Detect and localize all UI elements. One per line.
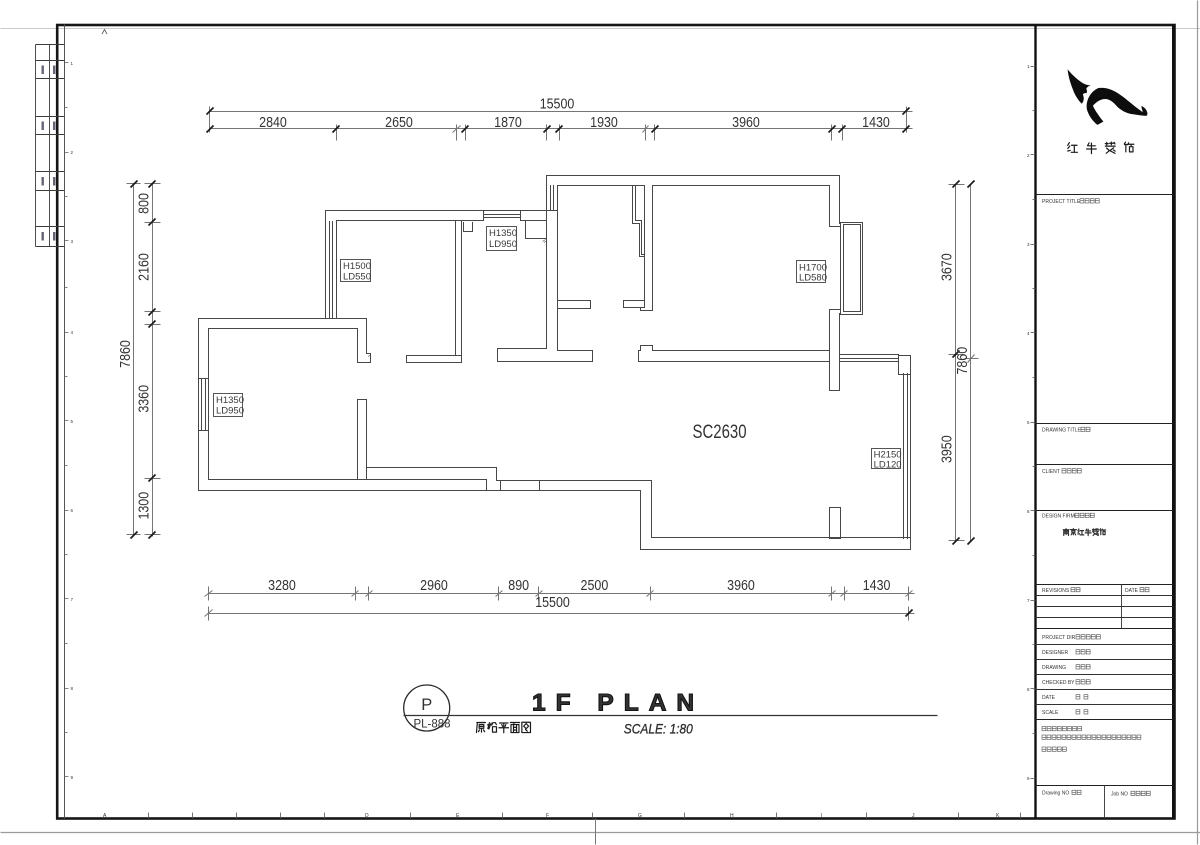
svg-text:I: I — [821, 813, 822, 819]
svg-text:3280: 3280 — [268, 577, 296, 594]
svg-text:REVISIONS: REVISIONS — [1042, 588, 1070, 594]
svg-text:DATE: DATE — [1042, 695, 1056, 701]
svg-text:7860: 7860 — [117, 340, 134, 368]
svg-text:DRAWING TITLE: DRAWING TITLE — [1042, 428, 1082, 434]
svg-text:2650: 2650 — [385, 114, 413, 131]
svg-text:SC2630: SC2630 — [693, 421, 747, 443]
svg-text:15500: 15500 — [535, 594, 570, 611]
svg-text:2960: 2960 — [420, 577, 448, 594]
svg-text:P: P — [421, 696, 432, 714]
svg-text:LD950: LD950 — [489, 239, 517, 250]
svg-text:15500: 15500 — [540, 96, 575, 113]
svg-text:LD580: LD580 — [799, 273, 827, 284]
svg-text:DRAWING: DRAWING — [1042, 665, 1066, 671]
svg-text:SCALE: SCALE — [1042, 710, 1059, 716]
svg-text:1300: 1300 — [135, 492, 152, 520]
svg-text:CLIENT: CLIENT — [1042, 469, 1060, 475]
svg-text:PROJECT DIR: PROJECT DIR — [1042, 635, 1076, 641]
svg-text:7860: 7860 — [954, 347, 971, 375]
svg-text:H: H — [730, 813, 734, 819]
svg-text:SCALE: 1:80: SCALE: 1:80 — [624, 720, 693, 736]
svg-text:H1350: H1350 — [216, 395, 244, 406]
svg-text:1870: 1870 — [494, 114, 522, 131]
svg-text:F: F — [546, 813, 549, 819]
svg-text:3670: 3670 — [939, 253, 956, 281]
svg-text:2160: 2160 — [135, 253, 152, 281]
svg-text:Drawing NO: Drawing NO — [1042, 791, 1069, 797]
svg-text:LD950: LD950 — [216, 406, 244, 417]
svg-text:890: 890 — [508, 577, 529, 594]
svg-text:PL-888: PL-888 — [413, 719, 450, 731]
svg-text:800: 800 — [135, 193, 152, 214]
svg-text:G: G — [638, 813, 642, 819]
svg-text:1930: 1930 — [590, 114, 618, 131]
svg-text:1430: 1430 — [862, 114, 890, 131]
svg-text:H1500: H1500 — [343, 261, 371, 272]
svg-text:3960: 3960 — [732, 114, 760, 131]
svg-text:CHECKED BY: CHECKED BY — [1042, 680, 1075, 686]
svg-text:2500: 2500 — [581, 577, 609, 594]
svg-text:DESIGNER: DESIGNER — [1042, 650, 1069, 656]
svg-text:2840: 2840 — [259, 114, 287, 131]
svg-text:DATE: DATE — [1125, 588, 1139, 594]
svg-text:DESIGN FIRM: DESIGN FIRM — [1042, 514, 1075, 520]
svg-text:3950: 3950 — [939, 435, 956, 463]
svg-text:H1350: H1350 — [489, 228, 517, 239]
svg-text:PROJECT TITLE: PROJECT TITLE — [1042, 199, 1081, 205]
svg-text:D: D — [365, 813, 369, 819]
svg-text:3360: 3360 — [135, 385, 152, 413]
svg-text:Job NO: Job NO — [1111, 792, 1128, 798]
svg-text:LD550: LD550 — [343, 271, 371, 282]
svg-text:3960: 3960 — [727, 577, 755, 594]
svg-text:1430: 1430 — [863, 577, 891, 594]
svg-text:LD120: LD120 — [874, 459, 902, 470]
svg-text:1F PLAN: 1F PLAN — [532, 690, 704, 717]
